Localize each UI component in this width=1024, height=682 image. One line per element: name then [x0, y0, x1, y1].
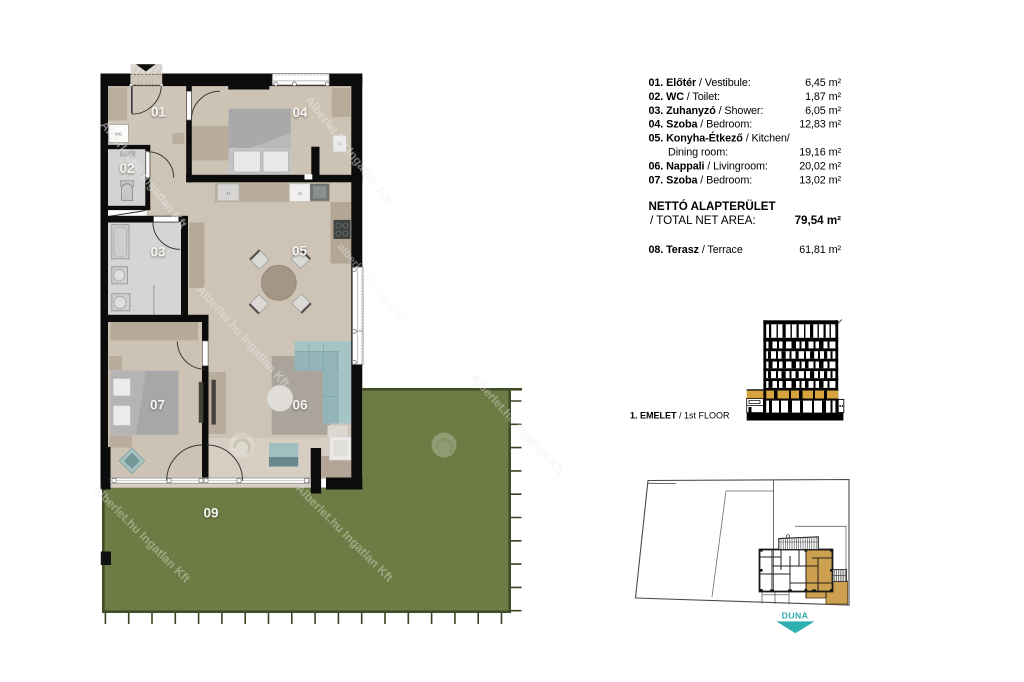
svg-text:6,05 m²: 6,05 m² — [805, 105, 841, 117]
svg-text:06. Nappali / Livingroom:: 06. Nappali / Livingroom: — [649, 160, 768, 172]
svg-text:13,02 m²: 13,02 m² — [799, 174, 841, 186]
svg-text:03: 03 — [150, 245, 166, 260]
svg-text:1. EMELET / 1st FLOOR: 1. EMELET / 1st FLOOR — [630, 411, 730, 421]
svg-text:12,83 m²: 12,83 m² — [799, 119, 841, 131]
svg-text:08. Terasz / Terrace: 08. Terasz / Terrace — [649, 244, 743, 256]
svg-text:6,45 m²: 6,45 m² — [805, 77, 841, 89]
svg-text:DUNA: DUNA — [782, 611, 809, 621]
svg-text:01: 01 — [151, 105, 167, 120]
svg-text:NETTÓ ALAPTERÜLET: NETTÓ ALAPTERÜLET — [649, 200, 776, 213]
svg-text:07: 07 — [150, 398, 165, 413]
svg-text:20,02 m²: 20,02 m² — [799, 160, 841, 172]
svg-text:/ TOTAL NET AREA:: / TOTAL NET AREA: — [650, 214, 756, 227]
svg-text:61,81 m²: 61,81 m² — [799, 244, 841, 256]
svg-text:09: 09 — [203, 506, 218, 521]
svg-text:04: 04 — [292, 105, 308, 120]
svg-text:04. Szoba / Bedroom:: 04. Szoba / Bedroom: — [649, 119, 753, 131]
svg-text:05. Konyha-Étkező / Kitchen/: 05. Konyha-Étkező / Kitchen/ — [649, 132, 790, 145]
svg-text:M: M — [298, 191, 302, 196]
svg-text:06: 06 — [292, 398, 308, 413]
svg-text:H: H — [227, 191, 230, 196]
svg-text:02. WC / Toilet:: 02. WC / Toilet: — [649, 91, 721, 103]
svg-text:Dining room:: Dining room: — [668, 147, 728, 159]
svg-text:07. Szoba / Bedroom:: 07. Szoba / Bedroom: — [649, 174, 753, 186]
svg-text:1,87 m²: 1,87 m² — [805, 91, 841, 103]
svg-text:79,54 m²: 79,54 m² — [795, 214, 842, 227]
svg-text:03. Zuhanyzó / Shower:: 03. Zuhanyzó / Shower: — [649, 105, 764, 117]
svg-text:05: 05 — [292, 244, 308, 259]
svg-text:19,16 m²: 19,16 m² — [799, 147, 841, 159]
svg-text:01. Előtér / Vestibule:: 01. Előtér / Vestibule: — [649, 77, 751, 89]
